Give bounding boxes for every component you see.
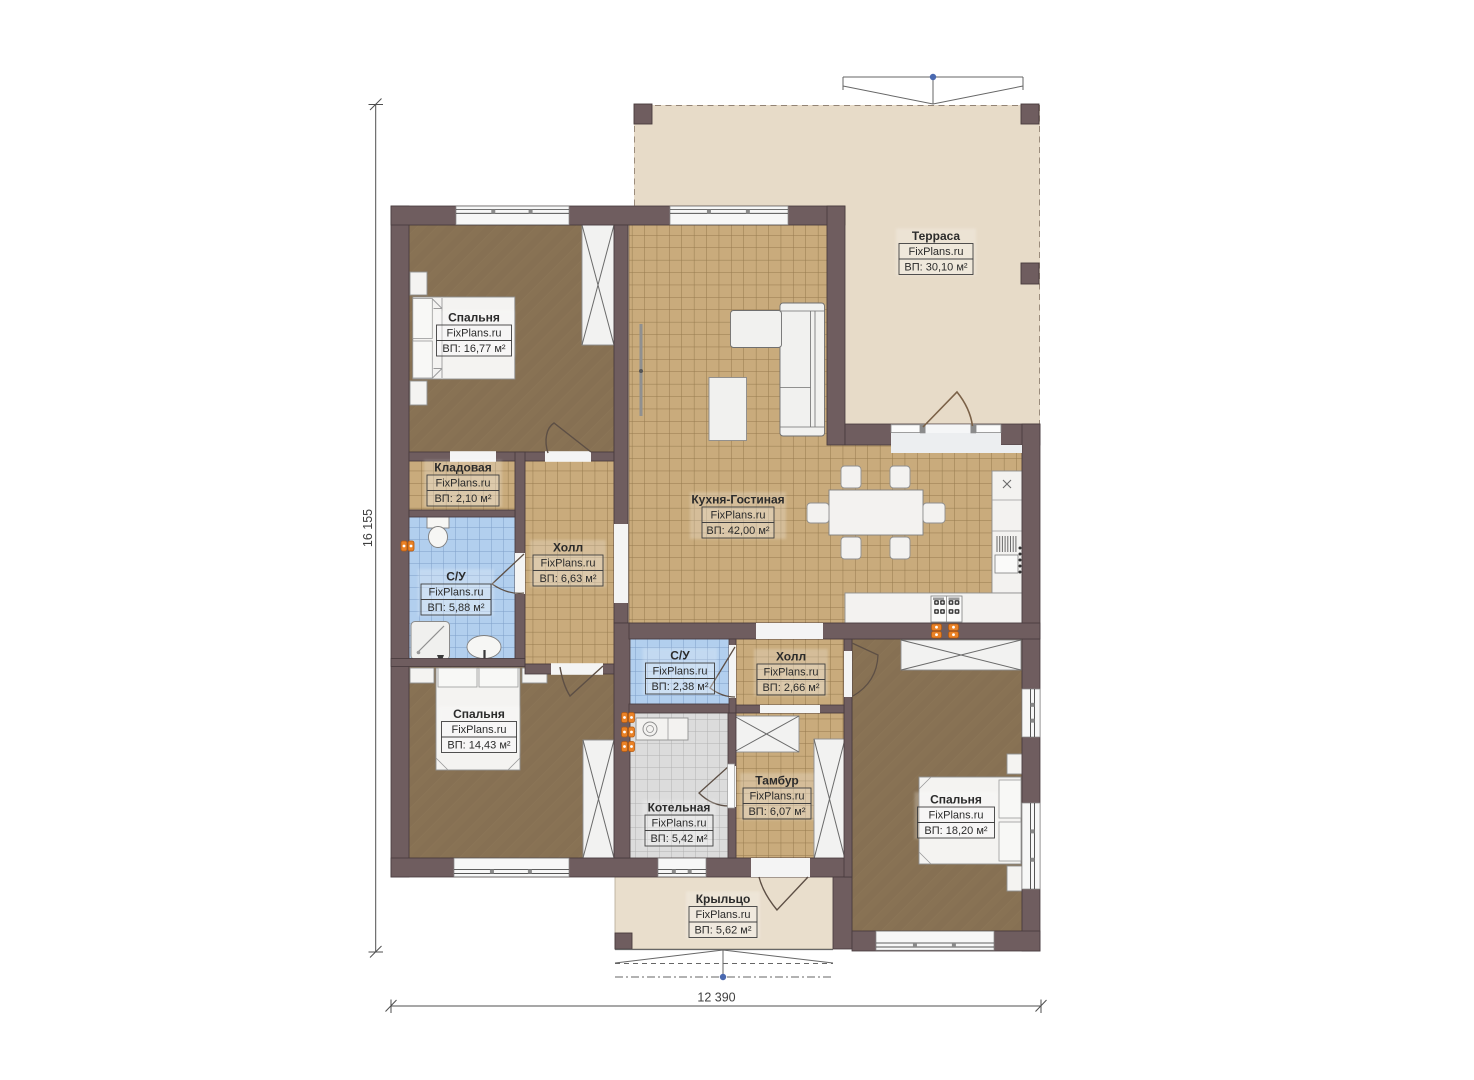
svg-text:ВП: 6,07 м²: ВП: 6,07 м² xyxy=(748,806,805,818)
svg-text:С/У: С/У xyxy=(446,570,466,584)
svg-text:Тамбур: Тамбур xyxy=(755,774,799,788)
svg-text:ВП: 2,10 м²: ВП: 2,10 м² xyxy=(434,493,491,505)
svg-text:FixPlans.ru: FixPlans.ru xyxy=(446,328,501,340)
svg-text:FixPlans.ru: FixPlans.ru xyxy=(540,558,595,570)
svg-text:ВП: 16,77 м²: ВП: 16,77 м² xyxy=(442,343,506,355)
svg-text:ВП: 2,38 м²: ВП: 2,38 м² xyxy=(651,681,708,693)
svg-text:16 155: 16 155 xyxy=(361,509,375,547)
svg-text:ВП: 5,88 м²: ВП: 5,88 м² xyxy=(427,602,484,614)
svg-text:Холл: Холл xyxy=(776,650,806,664)
svg-text:ВП: 5,62 м²: ВП: 5,62 м² xyxy=(694,925,751,937)
svg-text:ВП: 14,43 м²: ВП: 14,43 м² xyxy=(447,740,511,752)
svg-text:FixPlans.ru: FixPlans.ru xyxy=(763,667,818,679)
svg-text:Котельная: Котельная xyxy=(648,801,711,815)
svg-text:ВП: 6,63 м²: ВП: 6,63 м² xyxy=(539,573,596,585)
svg-text:Спальня: Спальня xyxy=(453,707,505,721)
svg-text:Кухня-Гостиная: Кухня-Гостиная xyxy=(691,493,784,507)
svg-text:FixPlans.ru: FixPlans.ru xyxy=(710,510,765,522)
svg-text:FixPlans.ru: FixPlans.ru xyxy=(451,724,506,736)
svg-text:FixPlans.ru: FixPlans.ru xyxy=(749,791,804,803)
svg-text:ВП: 5,42 м²: ВП: 5,42 м² xyxy=(650,833,707,845)
svg-text:FixPlans.ru: FixPlans.ru xyxy=(928,810,983,822)
svg-text:С/У: С/У xyxy=(670,649,690,663)
svg-text:Спальня: Спальня xyxy=(448,311,500,325)
svg-text:ВП: 2,66 м²: ВП: 2,66 м² xyxy=(762,682,819,694)
svg-text:FixPlans.ru: FixPlans.ru xyxy=(651,818,706,830)
svg-text:Холл: Холл xyxy=(553,541,583,555)
svg-text:Терраса: Терраса xyxy=(912,229,961,243)
svg-text:Кладовая: Кладовая xyxy=(434,461,491,475)
svg-text:FixPlans.ru: FixPlans.ru xyxy=(908,246,963,258)
svg-text:ВП: 30,10 м²: ВП: 30,10 м² xyxy=(904,262,968,274)
svg-text:Спальня: Спальня xyxy=(930,793,982,807)
svg-text:FixPlans.ru: FixPlans.ru xyxy=(428,587,483,599)
svg-text:FixPlans.ru: FixPlans.ru xyxy=(652,666,707,678)
svg-text:12 390: 12 390 xyxy=(697,991,735,1005)
svg-text:FixPlans.ru: FixPlans.ru xyxy=(695,909,750,921)
svg-text:Крыльцо: Крыльцо xyxy=(696,892,751,906)
svg-text:ВП: 42,00 м²: ВП: 42,00 м² xyxy=(706,525,770,537)
svg-text:ВП: 18,20 м²: ВП: 18,20 м² xyxy=(924,825,988,837)
svg-text:FixPlans.ru: FixPlans.ru xyxy=(435,478,490,490)
